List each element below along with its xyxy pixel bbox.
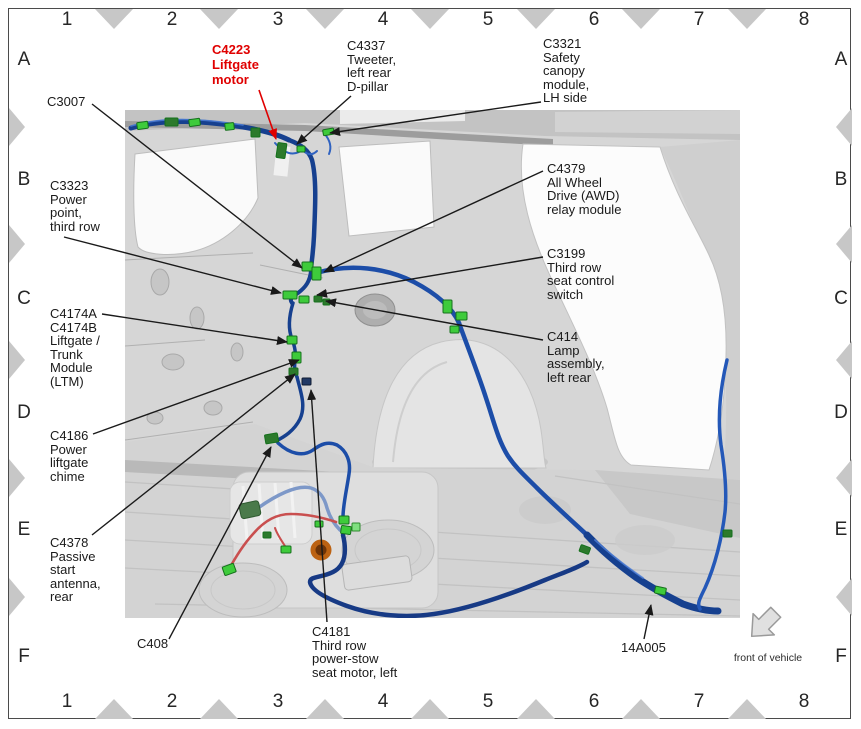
callout-text-line: Module [50,361,100,375]
callout-label-c4337: C4337Tweeter,left rearD-pillar [347,39,396,93]
callout-label-c3321: C3321Safetycanopymodule,LH side [543,37,589,105]
grid-column-label-2-bottom: 2 [160,690,184,714]
grid-marker-triangle-top [622,9,660,29]
callout-text-line: Passive [50,550,101,564]
callout-text-line: C4186 [50,429,88,443]
callout-label-c4378: C4378Passivestartantenna,rear [50,536,101,604]
speaker-coil-ring [313,542,329,558]
callout-text-line: All Wheel [547,176,621,190]
callout-text-line: Lamp [547,344,605,358]
grid-row-label-E-right: E [829,518,853,542]
callout-text-line: Liftgate [212,57,259,72]
callout-label-c3199: C3199Third rowseat controlswitch [547,247,614,301]
callout-text-line: Liftgate / [50,334,100,348]
callout-text-line: antenna, [50,577,101,591]
callout-text-line: C3199 [547,247,614,261]
grid-marker-triangle-top [200,9,238,29]
callout-text-line: C4174B [50,321,100,335]
callout-label-c4223: C4223Liftgatemotor [212,42,259,87]
grid-column-label-7-bottom: 7 [687,690,711,714]
grid-column-label-4-bottom: 4 [371,690,395,714]
body-panels [125,110,740,618]
callout-text-line: chime [50,470,88,484]
grid-row-label-A-right: A [829,48,853,72]
callout-text-line: third row [50,220,100,234]
grid-row-label-F-right: F [829,645,853,669]
callout-label-c3007: C3007 [47,95,85,109]
callout-label-c4379: C4379All WheelDrive (AWD)relay module [547,162,621,216]
grid-column-label-3-top: 3 [266,8,290,32]
callout-text-line: LH side [543,91,589,105]
grid-marker-triangle-right [836,578,852,616]
callout-text-line: D-pillar [347,80,396,94]
callout-text-line: canopy [543,64,589,78]
grid-row-label-C-right: C [829,287,853,311]
callout-text-line: C4379 [547,162,621,176]
callout-text-line: Third row [547,261,614,275]
callout-label-c4181: C4181Third rowpower-stowseat motor, left [312,625,397,679]
callout-text-line: assembly, [547,357,605,371]
grid-marker-triangle-left [9,225,25,263]
grid-column-label-8-bottom: 8 [792,690,816,714]
callout-text-line: C414 [547,330,605,344]
callout-text-line: C4181 [312,625,397,639]
grid-column-label-7-top: 7 [687,8,711,32]
grid-marker-triangle-left [9,341,25,379]
callout-text-line: C4378 [50,536,101,550]
grid-row-label-F-left: F [12,645,36,669]
grid-column-label-3-bottom: 3 [266,690,290,714]
grid-marker-triangle-top [517,9,555,29]
grid-row-label-B-right: B [829,168,853,192]
grid-marker-triangle-bottom [95,699,133,719]
callout-text-line: 14A005 [621,641,666,655]
grid-marker-triangle-right [836,341,852,379]
callout-text-line: relay module [547,203,621,217]
grid-column-label-6-top: 6 [582,8,606,32]
grid-marker-triangle-left [9,578,25,616]
grid-row-label-B-left: B [12,168,36,192]
grid-row-label-D-right: D [829,401,853,425]
grid-marker-triangle-right [836,225,852,263]
grid-row-label-D-left: D [12,401,36,425]
grid-marker-triangle-bottom [200,699,238,719]
callout-text-line: left rear [547,371,605,385]
front-of-vehicle-arrow-icon [742,604,788,652]
callout-text-line: left rear [347,66,396,80]
callout-text-line: liftgate [50,456,88,470]
callout-text-line: C4223 [212,42,259,57]
callout-text-line: C4174A [50,307,100,321]
callout-label-c4174ab: C4174AC4174BLiftgate /TrunkModule(LTM) [50,307,100,388]
callout-text-line: point, [50,206,100,220]
grid-marker-triangle-bottom [306,699,344,719]
grid-marker-triangle-top [95,9,133,29]
callout-text-line: module, [543,78,589,92]
callout-text-line: C408 [137,637,168,651]
grid-row-label-A-left: A [12,48,36,72]
callout-text-line: Power [50,443,88,457]
wiring-location-diagram-page: { "figure": { "type": "vehicle wiring ha… [0,0,861,729]
grid-marker-triangle-top [411,9,449,29]
grid-marker-triangle-bottom [622,699,660,719]
grid-row-label-E-left: E [12,518,36,542]
callout-text-line: switch [547,288,614,302]
grid-marker-triangle-right [836,108,852,146]
grid-marker-triangle-left [9,108,25,146]
callout-text-line: C3321 [543,37,589,51]
front-of-vehicle-label: front of vehicle [718,652,818,664]
grid-column-label-2-top: 2 [160,8,184,32]
callout-text-line: Third row [312,639,397,653]
callout-label-c4186: C4186Powerliftgatechime [50,429,88,483]
grid-marker-triangle-bottom [517,699,555,719]
callout-label-14a005: 14A005 [621,641,666,655]
grid-marker-triangle-left [9,459,25,497]
grid-marker-triangle-bottom [728,699,766,719]
callout-label-c3323: C3323Powerpoint,third row [50,179,100,233]
grid-marker-triangle-top [728,9,766,29]
callout-text-line: C4337 [347,39,396,53]
grid-marker-triangle-top [306,9,344,29]
callout-text-line: Tweeter, [347,53,396,67]
grid-column-label-1-top: 1 [55,8,79,32]
callout-text-line: Trunk [50,348,100,362]
callout-text-line: (LTM) [50,375,100,389]
callout-text-line: Drive (AWD) [547,189,621,203]
grid-column-label-1-bottom: 1 [55,690,79,714]
vehicle-rear-body-illustration [125,110,740,618]
callout-text-line: power-stow [312,652,397,666]
callout-text-line: start [50,563,101,577]
grid-marker-triangle-right [836,459,852,497]
callout-text-line: motor [212,72,259,87]
grid-column-label-5-bottom: 5 [476,690,500,714]
grid-column-label-8-top: 8 [792,8,816,32]
callout-text-line: Safety [543,51,589,65]
callout-text-line: C3323 [50,179,100,193]
callout-label-c408: C408 [137,637,168,651]
callout-text-line: Power [50,193,100,207]
callout-text-line: seat control [547,274,614,288]
grid-row-label-C-left: C [12,287,36,311]
callout-text-line: rear [50,590,101,604]
grid-column-label-6-bottom: 6 [582,690,606,714]
callout-text-line: seat motor, left [312,666,397,680]
grid-column-label-5-top: 5 [476,8,500,32]
grid-column-label-4-top: 4 [371,8,395,32]
callout-label-c414: C414Lampassembly,left rear [547,330,605,384]
callout-text-line: C3007 [47,95,85,109]
grid-marker-triangle-bottom [411,699,449,719]
